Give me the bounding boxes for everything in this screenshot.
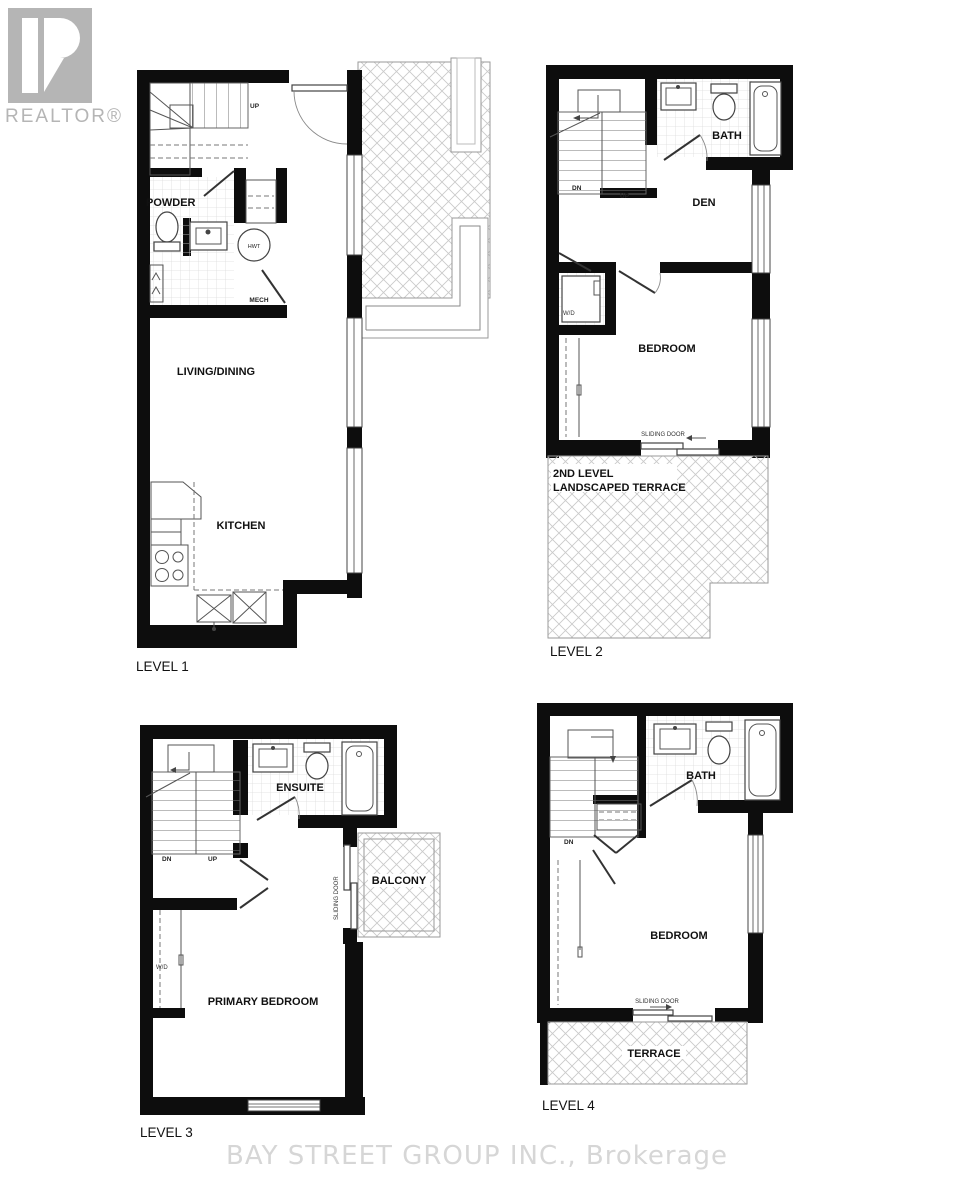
level2-terrace-label-2: LANDSCAPED TERRACE [553, 482, 686, 494]
level-1-plan: UP POWDER HWT MECH LIVING/DINI [136, 58, 490, 674]
level3-stairs: DN UP [146, 745, 240, 863]
level2-sliding-door-label: SLIDING DOOR [641, 432, 685, 438]
level4-sliding-door-label: SLIDING DOOR [635, 999, 679, 1005]
level2-toilet [711, 84, 737, 120]
level4-bedroom-label: BEDROOM [650, 930, 707, 942]
level1-windows [347, 155, 362, 573]
level1-cabinets [151, 519, 181, 545]
level2-title: LEVEL 2 [550, 644, 603, 659]
level1-kitchen-label: KITCHEN [217, 520, 266, 532]
level4-tub [745, 720, 780, 800]
level3-dn-label: DN [162, 856, 172, 863]
level-2-plan: DN UP BATH DEN W/D [546, 65, 793, 659]
level3-title: LEVEL 3 [140, 1125, 193, 1140]
level4-terrace-label: TERRACE [627, 1048, 680, 1060]
level1-up-label: UP [250, 103, 260, 110]
level2-tub [750, 82, 781, 155]
level1-walls [137, 70, 362, 648]
level1-counter-dash [194, 482, 283, 590]
level3-wd-closet [160, 910, 183, 1008]
level3-tub [342, 742, 377, 815]
level1-entry-door [292, 85, 347, 91]
level3-ensuite-sink [253, 744, 293, 772]
level1-powder-label: POWDER [146, 197, 196, 209]
level3-up-label: UP [208, 856, 218, 863]
level2-bath-label: BATH [712, 130, 742, 142]
level2-terrace-label-1: 2ND LEVEL [553, 468, 614, 480]
level1-hwt-label: HWT [248, 244, 261, 250]
level2-bedroom-door-swing [655, 273, 660, 293]
level1-stairs: UP [150, 83, 260, 175]
level4-sliding-door [633, 1004, 712, 1021]
level2-bedroom-door [619, 271, 655, 293]
realtor-logo-text: REALTOR® [5, 106, 123, 127]
level1-powder-sink [190, 222, 227, 250]
level2-closet [566, 338, 581, 437]
level3-wd-label: W/D [156, 965, 168, 971]
realtor-logo: REALTOR® [5, 8, 123, 127]
level3-bedroom-doors [240, 860, 268, 908]
level3-toilet [304, 743, 330, 779]
level1-entry-closet [246, 180, 276, 223]
level1-stove [151, 545, 188, 586]
level2-up-label: UP [620, 193, 630, 200]
level4-toilet [706, 722, 732, 764]
level3-balcony-label: BALCONY [372, 875, 427, 887]
brokerage-watermark: BAY STREET GROUP INC., Brokerage [226, 1141, 728, 1171]
level3-balcony-slider [344, 845, 357, 929]
level3-bottom-window [248, 1100, 320, 1111]
level1-toilet [154, 212, 180, 251]
realtor-logo-r-stem [22, 18, 38, 93]
level4-title: LEVEL 4 [542, 1098, 595, 1113]
level4-dn-label: DN [564, 839, 574, 846]
level2-dn-label: DN [572, 185, 582, 192]
level1-living-label: LIVING/DINING [177, 366, 255, 378]
level1-dishwasher [233, 592, 266, 623]
level2-bath-sink [661, 83, 696, 110]
level2-bedroom-label: BEDROOM [638, 343, 695, 355]
level3-primary-bedroom-label: PRIMARY BEDROOM [208, 996, 319, 1008]
level-4-plan: DN BATH BEDROOM [537, 703, 793, 1113]
level1-planter-top [451, 58, 481, 152]
level1-hwt: HWT [238, 229, 270, 261]
level1-entry-door-swing [294, 91, 347, 144]
floorplan-canvas: REALTOR® [0, 0, 953, 1200]
level4-windows [748, 835, 763, 933]
level3-sliding-door-label: SLIDING DOOR [334, 876, 340, 920]
level4-bath-sink [654, 724, 696, 754]
level3-ensuite-label: ENSUITE [276, 782, 324, 794]
level-3-plan: DN UP ENSUITE [140, 725, 440, 1140]
level1-mech-label: MECH [249, 297, 268, 304]
level2-stairs: DN UP [550, 90, 646, 200]
floorplan-sheet: REALTOR® [0, 0, 953, 1200]
level2-wd-label: W/D [563, 311, 575, 317]
level2-den-label: DEN [692, 197, 715, 209]
level4-closet [558, 860, 582, 1005]
level4-stairs: DN [550, 730, 638, 846]
level1-title: LEVEL 1 [136, 659, 189, 674]
level2-sliding-door [641, 435, 719, 455]
